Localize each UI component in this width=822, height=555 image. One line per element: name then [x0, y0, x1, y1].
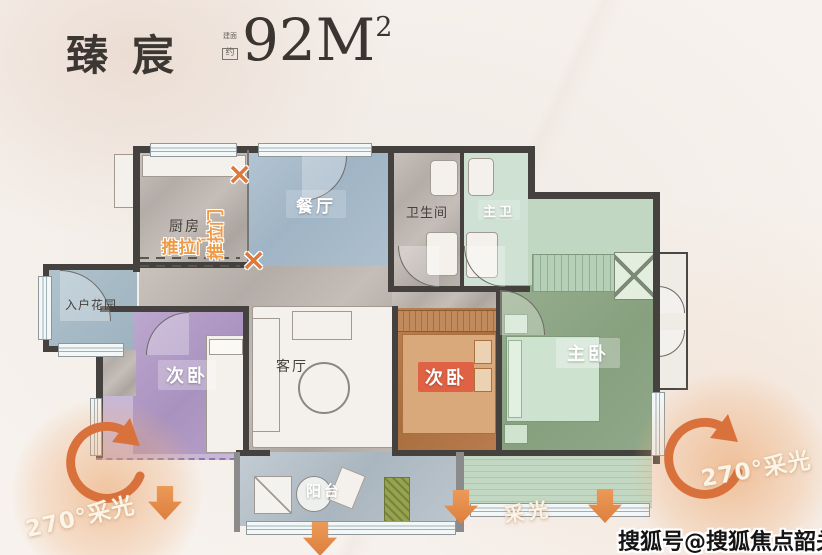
window: [38, 276, 52, 340]
label-dining: 餐厅: [286, 190, 346, 218]
x-mark-bottom: ×: [241, 246, 266, 276]
wall: [236, 450, 270, 456]
area-value: 92M2: [242, 6, 392, 74]
watermark-text: 搜狐号@搜狐焦点韶关站: [618, 524, 822, 555]
wardrobe-right-bedroom: [396, 310, 498, 332]
pillow-left: [209, 339, 243, 355]
window: [258, 143, 372, 157]
area-number: 92M: [242, 6, 375, 74]
wall: [528, 192, 660, 199]
side-closet: [656, 252, 688, 390]
label-master-bedroom: 主卧: [556, 338, 620, 368]
plan-title: 臻宸: [66, 22, 198, 83]
floorplan-page: 臻宸 建面约 92M2: [0, 0, 822, 555]
balcony-frame: [234, 452, 240, 532]
wall: [460, 146, 464, 286]
area-prefix-boxed: 约: [222, 48, 237, 60]
corridor: [392, 290, 498, 310]
sliding-door-label-vertical: 推拉门: [202, 196, 227, 274]
pillow-right-2: [474, 368, 492, 392]
label-bedroom-right: 次卧: [418, 362, 474, 392]
window: [150, 143, 237, 157]
label-bathroom: 卫生间: [398, 202, 456, 221]
pillow-master: [508, 340, 522, 418]
nightstand-2: [504, 424, 528, 444]
wall: [43, 264, 139, 270]
planter-box: [384, 477, 410, 523]
window: [470, 503, 650, 517]
shower-box: [614, 252, 654, 300]
daylight-label: 采光: [502, 493, 554, 528]
label-entry-garden: 入户花园: [58, 296, 124, 313]
master-balcony: [464, 452, 652, 508]
wall: [243, 306, 249, 454]
area-prefix-small: 建面: [221, 33, 239, 41]
area-superscript: 2: [375, 12, 392, 43]
wall: [133, 146, 140, 272]
pillow-right-1: [474, 340, 492, 364]
window: [246, 521, 456, 535]
window: [58, 343, 124, 357]
wall: [392, 450, 660, 456]
master-toilet: [468, 158, 494, 196]
tv-cabinet: [292, 311, 352, 340]
balcony-mat: [254, 476, 292, 514]
wall: [392, 306, 398, 454]
label-master-bathroom: 主卫: [478, 200, 520, 220]
wall: [528, 146, 535, 198]
label-bedroom-left: 次卧: [158, 360, 216, 390]
label-living: 客厅: [262, 356, 322, 376]
label-balcony: 阳台: [298, 478, 350, 502]
area-prefix-badge: 建面约: [221, 33, 239, 60]
toilet: [430, 160, 458, 196]
wall: [388, 146, 394, 292]
x-mark-top: ×: [227, 160, 252, 190]
